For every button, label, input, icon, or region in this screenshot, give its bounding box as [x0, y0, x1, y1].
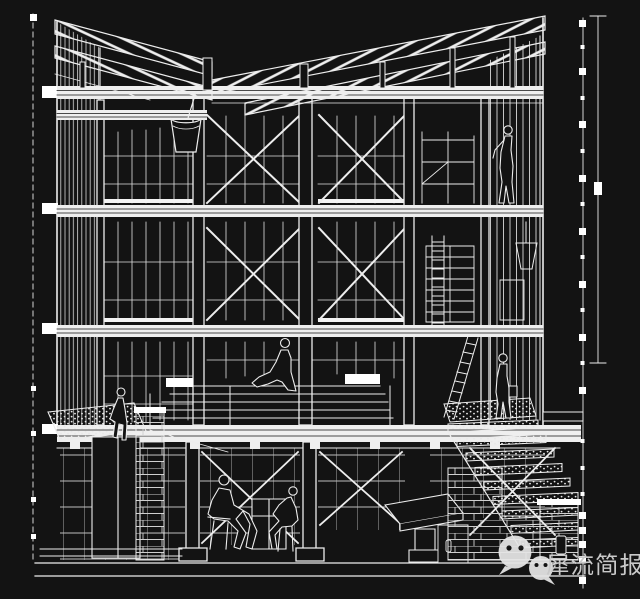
- right-balcony: [543, 412, 583, 421]
- screenshot-root: 犀流简报: [0, 0, 640, 599]
- masonry-pillar: [134, 407, 166, 560]
- architectural-section-drawing: 犀流简报: [0, 0, 640, 599]
- kiosk: [92, 437, 140, 558]
- left-wall-louvers: [57, 22, 100, 430]
- watermark-text: 犀流简报: [546, 551, 640, 579]
